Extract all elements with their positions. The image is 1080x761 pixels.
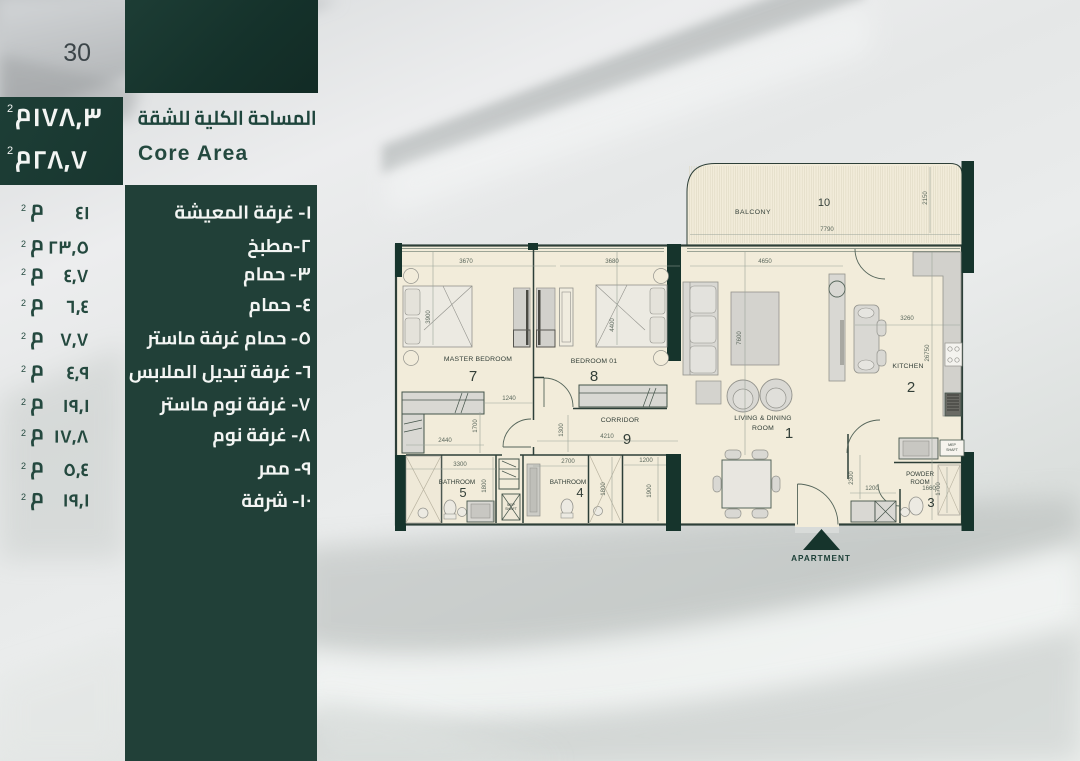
svg-text:3: 3 [927,495,934,510]
svg-text:2300: 2300 [848,471,855,485]
svg-text:3670: 3670 [459,258,473,265]
svg-text:26750: 26750 [924,344,931,362]
svg-text:8: 8 [590,368,598,385]
svg-text:2: 2 [21,298,26,308]
svg-text:APARTMENT: APARTMENT [791,554,851,563]
svg-text:SHAFT: SHAFT [946,448,959,452]
svg-text:1: 1 [785,425,793,442]
svg-text:POWDER: POWDER [906,471,934,478]
svg-text:KITCHEN: KITCHEN [892,363,923,370]
svg-text:3680: 3680 [605,258,619,265]
svg-text:2700: 2700 [561,458,575,465]
svg-text:1900: 1900 [646,484,653,498]
svg-text:MEP: MEP [948,443,956,447]
svg-text:2: 2 [21,364,26,374]
svg-text:4650: 4650 [758,258,772,265]
svg-text:1240: 1240 [502,395,516,402]
svg-text:10: 10 [818,197,830,209]
svg-text:2: 2 [907,379,915,396]
svg-text:7600: 7600 [736,331,743,345]
svg-text:5: 5 [459,485,466,500]
svg-text:2: 2 [21,331,26,341]
svg-text:BEDROOM 01: BEDROOM 01 [571,358,618,365]
svg-text:3900: 3900 [425,310,432,324]
svg-text:1200: 1200 [639,457,653,464]
svg-text:2: 2 [21,428,26,438]
svg-text:3260: 3260 [900,315,914,322]
svg-text:1800: 1800 [481,479,488,493]
svg-text:2: 2 [21,492,26,502]
svg-text:2: 2 [7,145,13,157]
svg-text:2: 2 [21,461,26,471]
svg-text:1800: 1800 [600,482,607,496]
svg-text:MASTER BEDROOM: MASTER BEDROOM [444,356,512,363]
svg-text:ROOM: ROOM [910,479,929,486]
svg-text:4400: 4400 [609,318,616,332]
svg-text:2: 2 [21,397,26,407]
svg-text:CORRIDOR: CORRIDOR [601,417,640,424]
svg-text:1300: 1300 [558,423,565,437]
svg-text:1200: 1200 [865,485,879,492]
svg-text:1700: 1700 [935,482,942,496]
svg-text:9: 9 [623,431,631,448]
svg-text:2: 2 [21,239,26,249]
svg-text:4: 4 [576,485,583,500]
svg-text:BATHROOM: BATHROOM [439,479,475,486]
svg-text:BALCONY: BALCONY [735,209,771,216]
svg-text:1700: 1700 [472,419,479,433]
svg-text:2150: 2150 [922,191,929,205]
svg-text:LIVING & DINING: LIVING & DINING [734,415,791,422]
svg-text:2440: 2440 [438,437,452,444]
svg-text:2: 2 [21,203,26,213]
svg-text:7: 7 [469,368,477,385]
svg-text:4210: 4210 [600,433,614,440]
svg-text:7790: 7790 [820,226,834,233]
svg-text:ROOM: ROOM [752,425,774,432]
svg-text:SHAFT: SHAFT [505,507,518,511]
svg-text:3300: 3300 [453,461,467,468]
svg-text:2: 2 [7,103,13,115]
svg-text:2: 2 [21,267,26,277]
